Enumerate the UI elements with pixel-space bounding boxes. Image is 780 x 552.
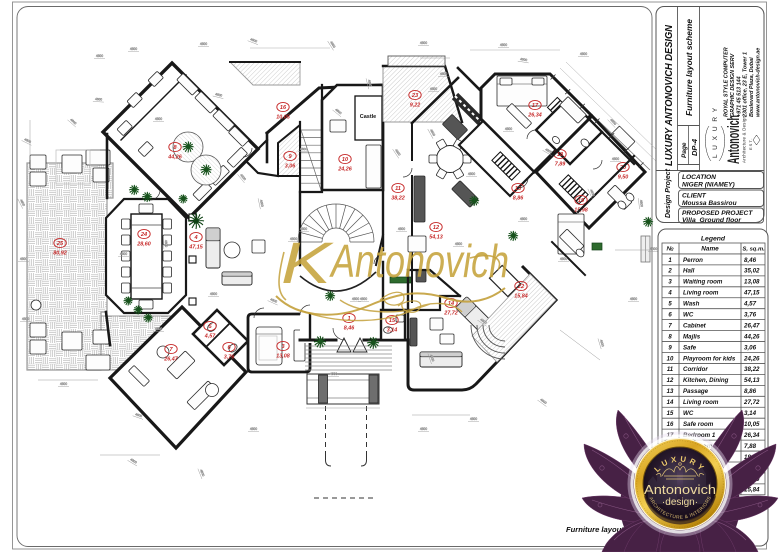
svg-text:L U X U R Y: L U X U R Y — [712, 106, 719, 158]
svg-text:4600: 4600 — [155, 117, 162, 121]
svg-text:Antonovich: Antonovich — [725, 115, 743, 164]
svg-text:Hall: Hall — [683, 268, 695, 275]
svg-text:4600: 4600 — [580, 52, 587, 56]
svg-text:№: № — [666, 246, 674, 253]
svg-text:LUXURY ANTONOVICH DESIGN: LUXURY ANTONOVICH DESIGN — [663, 25, 675, 166]
svg-text:Moussa Bassirou: Moussa Bassirou — [682, 200, 737, 207]
svg-text:26,47: 26,47 — [743, 322, 760, 329]
svg-text:Corridor: Corridor — [683, 366, 708, 373]
svg-text:4600: 4600 — [505, 127, 512, 131]
svg-text:24: 24 — [140, 232, 148, 238]
svg-text:9,22: 9,22 — [410, 103, 421, 109]
svg-text:13: 13 — [515, 186, 522, 192]
svg-text:Antonovich: Antonovich — [644, 483, 716, 497]
svg-text:EST.: EST. — [748, 138, 753, 150]
svg-text:Legend: Legend — [701, 236, 726, 243]
svg-text:3,76: 3,76 — [744, 312, 757, 319]
svg-text:·design·: ·design· — [662, 497, 698, 508]
svg-text:2: 2 — [667, 269, 672, 275]
svg-text:47,15: 47,15 — [188, 245, 203, 251]
svg-text:13,08: 13,08 — [744, 279, 760, 286]
svg-text:CLIENT: CLIENT — [682, 193, 707, 200]
svg-text:4,57: 4,57 — [743, 301, 757, 308]
svg-text:10,05: 10,05 — [276, 115, 290, 121]
svg-text:25: 25 — [56, 241, 64, 247]
svg-text:4600: 4600 — [20, 257, 27, 261]
svg-text:3,06: 3,06 — [285, 164, 296, 170]
svg-text:Wash: Wash — [683, 301, 700, 308]
svg-text:9,50: 9,50 — [618, 175, 629, 181]
svg-text:Villa Ground floor: Villa Ground floor — [682, 217, 741, 224]
svg-text:8,46: 8,46 — [344, 326, 355, 332]
svg-text:Castle: Castle — [360, 114, 377, 120]
svg-text:13,08: 13,08 — [276, 354, 290, 360]
svg-text:28,60: 28,60 — [136, 242, 151, 248]
svg-text:K: K — [281, 231, 334, 296]
svg-text:4: 4 — [667, 291, 672, 297]
svg-text:Furniture layout scheme: Furniture layout scheme — [685, 18, 694, 116]
svg-text:Majlis: Majlis — [683, 333, 701, 340]
svg-text:4600: 4600 — [96, 54, 103, 58]
svg-text:38,22: 38,22 — [391, 196, 405, 202]
svg-text:23: 23 — [411, 93, 419, 99]
svg-text:11: 11 — [395, 186, 401, 192]
svg-text:Kitchen, Dining: Kitchen, Dining — [683, 377, 729, 384]
svg-text:12: 12 — [433, 225, 440, 231]
svg-text:15,84: 15,84 — [514, 294, 528, 300]
svg-text:4600: 4600 — [22, 317, 29, 321]
svg-text:Cabinet: Cabinet — [683, 322, 707, 329]
svg-text:80,92: 80,92 — [53, 251, 67, 257]
svg-text:Safe room: Safe room — [683, 421, 714, 428]
svg-text:4600: 4600 — [164, 240, 168, 247]
svg-text:4600: 4600 — [352, 297, 359, 301]
svg-text:44,26: 44,26 — [743, 333, 760, 340]
svg-text:4600: 4600 — [430, 87, 437, 91]
svg-text:2301 office, 23 E, Tower 1: 2301 office, 23 E, Tower 1 — [743, 52, 749, 118]
svg-text:PROPOSED PROJECT: PROPOSED PROJECT — [682, 210, 753, 217]
svg-text:10,05: 10,05 — [744, 421, 760, 428]
svg-text:Perron: Perron — [683, 257, 703, 264]
svg-text:Page: Page — [681, 142, 688, 158]
svg-text:4600: 4600 — [468, 172, 475, 176]
svg-text:15: 15 — [667, 411, 674, 417]
svg-text:www.antonovich-design.ae: www.antonovich-design.ae — [756, 48, 762, 117]
svg-text:Architecture & Design: Architecture & Design — [742, 115, 747, 163]
svg-text:4600: 4600 — [210, 292, 217, 296]
svg-text:Living room: Living room — [683, 290, 719, 297]
svg-text:Waiting room: Waiting room — [683, 279, 723, 286]
svg-text:4600: 4600 — [300, 147, 307, 151]
svg-text:10: 10 — [667, 356, 674, 362]
svg-text:7,89: 7,89 — [555, 162, 566, 168]
svg-text:4600: 4600 — [520, 217, 527, 221]
svg-text:10: 10 — [342, 157, 349, 163]
svg-text:Antonovich: Antonovich — [329, 235, 509, 287]
svg-text:ROYAL STYLE COMPUTER: ROYAL STYLE COMPUTER — [724, 47, 730, 117]
svg-text:54,13: 54,13 — [744, 377, 760, 384]
svg-text:DP-4: DP-4 — [690, 138, 699, 156]
svg-text:38,22: 38,22 — [744, 366, 760, 373]
svg-text:4600: 4600 — [500, 43, 507, 47]
svg-text:16: 16 — [667, 422, 674, 428]
svg-text:4600: 4600 — [60, 382, 67, 386]
svg-text:11: 11 — [667, 367, 674, 373]
svg-text:3,76: 3,76 — [224, 355, 235, 361]
svg-text:3,14: 3,14 — [387, 328, 398, 334]
svg-text:8,86: 8,86 — [513, 196, 524, 202]
svg-text:24,26: 24,26 — [337, 167, 352, 173]
svg-text:4600: 4600 — [200, 42, 207, 46]
svg-text:NIGER (NIAMEY): NIGER (NIAMEY) — [682, 182, 735, 189]
svg-text:Playroom for kids: Playroom for kids — [683, 355, 736, 362]
svg-text:LOCATION: LOCATION — [682, 174, 716, 181]
svg-text:12: 12 — [667, 378, 674, 384]
svg-text:1: 1 — [347, 316, 350, 322]
svg-text:WC: WC — [683, 410, 694, 417]
svg-text:26,34: 26,34 — [527, 113, 542, 119]
svg-text:13: 13 — [667, 389, 674, 395]
svg-text:Name: Name — [701, 246, 719, 253]
svg-text:26,34: 26,34 — [743, 432, 760, 439]
svg-text:15: 15 — [389, 318, 396, 324]
svg-text:27,72: 27,72 — [743, 399, 760, 406]
svg-text:4600: 4600 — [560, 257, 567, 261]
svg-text:4600: 4600 — [130, 47, 137, 51]
svg-text:4600: 4600 — [250, 427, 257, 431]
svg-text:4600: 4600 — [630, 297, 637, 301]
svg-text:4600: 4600 — [420, 41, 427, 45]
svg-text:35,02: 35,02 — [744, 268, 760, 275]
svg-text:4600: 4600 — [440, 72, 447, 76]
svg-text:18: 18 — [557, 152, 564, 158]
svg-text:Boulevard Plaza, Dubai: Boulevard Plaza, Dubai — [749, 57, 755, 117]
svg-text:3,14: 3,14 — [744, 410, 757, 417]
svg-text:17: 17 — [532, 103, 539, 109]
svg-text:19: 19 — [578, 198, 585, 204]
svg-text:16: 16 — [280, 105, 287, 111]
svg-text:4600: 4600 — [330, 372, 337, 376]
svg-text:26,47: 26,47 — [163, 357, 178, 363]
svg-text:7,88: 7,88 — [744, 443, 757, 450]
svg-text:4600: 4600 — [398, 227, 405, 231]
svg-text:4600: 4600 — [612, 157, 619, 161]
svg-text:4600: 4600 — [95, 97, 103, 102]
svg-text:4600: 4600 — [155, 327, 162, 331]
svg-text:4600: 4600 — [470, 417, 477, 421]
svg-text:4600: 4600 — [360, 297, 367, 301]
svg-text:4600: 4600 — [650, 247, 657, 251]
svg-text:8,46: 8,46 — [744, 257, 757, 264]
svg-text:4600: 4600 — [120, 252, 127, 256]
svg-text:22: 22 — [517, 284, 525, 290]
svg-text:Design Project: Design Project — [665, 168, 672, 218]
svg-text:8,86: 8,86 — [744, 388, 757, 395]
svg-text:+971 45 513 144: +971 45 513 144 — [736, 76, 742, 117]
svg-text:24,26: 24,26 — [743, 355, 760, 362]
svg-text:Safe: Safe — [683, 344, 697, 351]
svg-text:4600: 4600 — [420, 427, 427, 431]
svg-text:47,15: 47,15 — [743, 290, 760, 297]
svg-text:Living room: Living room — [683, 399, 719, 406]
svg-text:14: 14 — [667, 400, 674, 406]
svg-text:Passage: Passage — [683, 388, 709, 395]
svg-text:4,57: 4,57 — [204, 334, 216, 340]
svg-text:44,26: 44,26 — [167, 155, 182, 161]
svg-text:S, sq.m.: S, sq.m. — [743, 247, 766, 253]
svg-text:WC: WC — [683, 312, 694, 319]
svg-text:GRAPHIC DESIGN SERV: GRAPHIC DESIGN SERV — [730, 53, 736, 117]
svg-text:3,06: 3,06 — [744, 344, 757, 351]
svg-text:27,72: 27,72 — [443, 311, 458, 317]
